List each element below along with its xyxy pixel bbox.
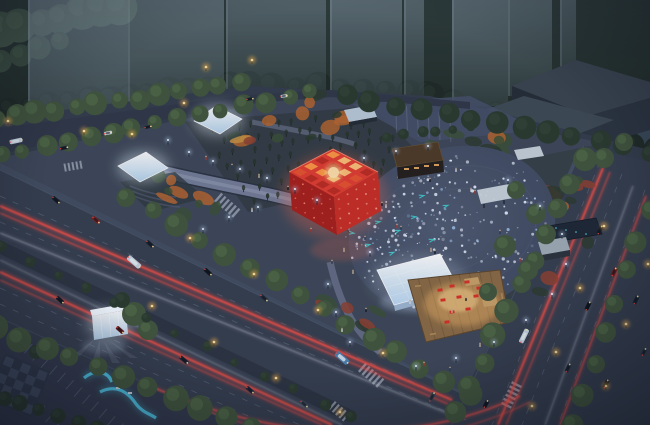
rendering-canvas	[0, 0, 650, 425]
vignette	[0, 0, 650, 425]
rendering-stage	[0, 0, 650, 425]
